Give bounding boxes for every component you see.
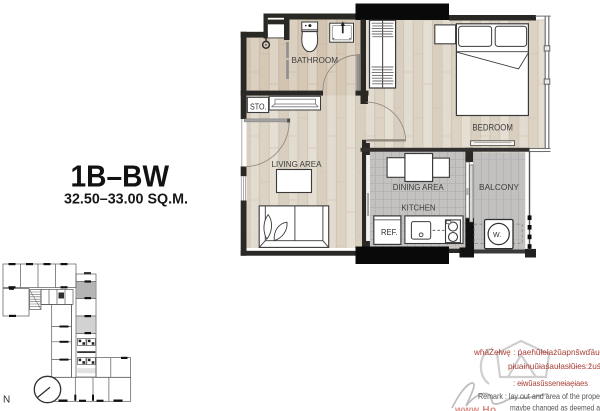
svg-text:BATHROOM: BATHROOM [292,55,339,65]
svg-text:1B–BW: 1B–BW [71,159,170,194]
svg-text:BEDROOM: BEDROOM [472,123,513,133]
svg-text:: eɨwŭasŭsseneɨaȩɨaes: : eɨwŭasŭsseneɨaȩɨaes [513,379,588,388]
svg-text:REF.: REF. [381,228,398,237]
svg-text:LIVING AREA: LIVING AREA [272,159,322,169]
svg-text:STO.: STO. [250,102,267,111]
svg-text:W.: W. [493,232,501,239]
svg-text:KITCHEN: KITCHEN [402,203,436,213]
svg-text:DINING AREA: DINING AREA [393,182,444,192]
svg-text:BALCONY: BALCONY [479,182,519,192]
svg-text:N: N [3,395,10,406]
svg-text:pɨuaɨnuŭɨaśaułasłŭɨes:žuśeɨau: pɨuaɨnuŭɨaśaułasłŭɨes:žuśeɨau [508,362,600,371]
svg-text:maybe changed as deemed a: maybe changed as deemed a [510,404,600,411]
svg-text:www.Ho: www.Ho [454,405,496,411]
svg-text:wɦāŹełwę : ṕaeɦŭłełażŭapnšwďā: wɦāŹełwę : ṕaeɦŭłełażŭapnšwďāułūeĺa [473,346,600,357]
svg-text:32.50–33.00 SQ.M.: 32.50–33.00 SQ.M. [64,191,188,207]
svg-text:Remark : lay out and area of t: Remark : lay out and area of the prope [478,392,600,401]
